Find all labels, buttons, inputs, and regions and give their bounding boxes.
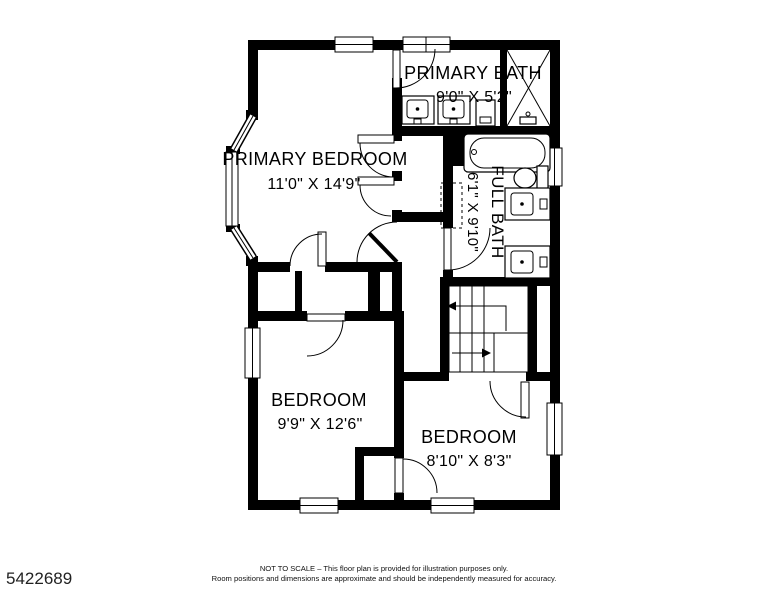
sink-icon [402, 96, 434, 124]
floor-plan-page: PRIMARY BATH 9'0" X 5'2" PRIMARY BEDROOM… [0, 0, 768, 594]
sink-icon [505, 246, 550, 278]
sink-icon [505, 188, 550, 220]
primary-bedroom-closet-door [290, 232, 326, 266]
primary-bath-dims: 9'0" X 5'2" [436, 89, 512, 106]
bedroom-closet-door-2 [358, 177, 394, 216]
bedroom2-dims: 8'10" X 8'3" [426, 453, 511, 470]
primary-bath-fixtures [402, 50, 550, 126]
shower-icon [507, 50, 550, 126]
primary-bedroom-label: PRIMARY BEDROOM [222, 149, 407, 169]
full-bath-dims: 6'1" X 9'10" [464, 172, 481, 252]
stairs-up-arrow [447, 302, 506, 332]
primary-bath-label: PRIMARY BATH [404, 63, 542, 83]
disclaimer-line-2: Room positions and dimensions are approx… [212, 574, 557, 583]
window-bottom-bedroom1 [300, 498, 338, 513]
disclaimer-line-1: NOT TO SCALE – This floor plan is provid… [260, 564, 508, 573]
window-top-1 [335, 37, 373, 52]
listing-id: 5422689 [6, 569, 72, 588]
window-bottom-bedroom2 [431, 498, 474, 513]
floor-plan-drawing: PRIMARY BATH 9'0" X 5'2" PRIMARY BEDROOM… [0, 0, 768, 594]
full-bath-label: FULL BATH [488, 165, 507, 258]
bedroom1-label: BEDROOM [271, 390, 367, 410]
bedroom1-door [307, 314, 345, 356]
footer: 5422689 NOT TO SCALE – This floor plan i… [6, 564, 556, 588]
bedroom2-door [490, 381, 529, 418]
window-top-2 [403, 37, 450, 52]
bedroom2-label: BEDROOM [421, 427, 517, 447]
primary-bedroom-hall-door [357, 222, 397, 262]
stairs [447, 286, 528, 372]
bedroom1-dims: 9'9" X 12'6" [277, 416, 362, 433]
window-right-bedroom2 [547, 403, 562, 455]
bay-window [226, 110, 258, 266]
window-left-bedroom1 [245, 328, 260, 378]
toilet-icon [514, 166, 548, 190]
primary-bedroom-dims: 11'0" X 14'9" [267, 176, 360, 193]
